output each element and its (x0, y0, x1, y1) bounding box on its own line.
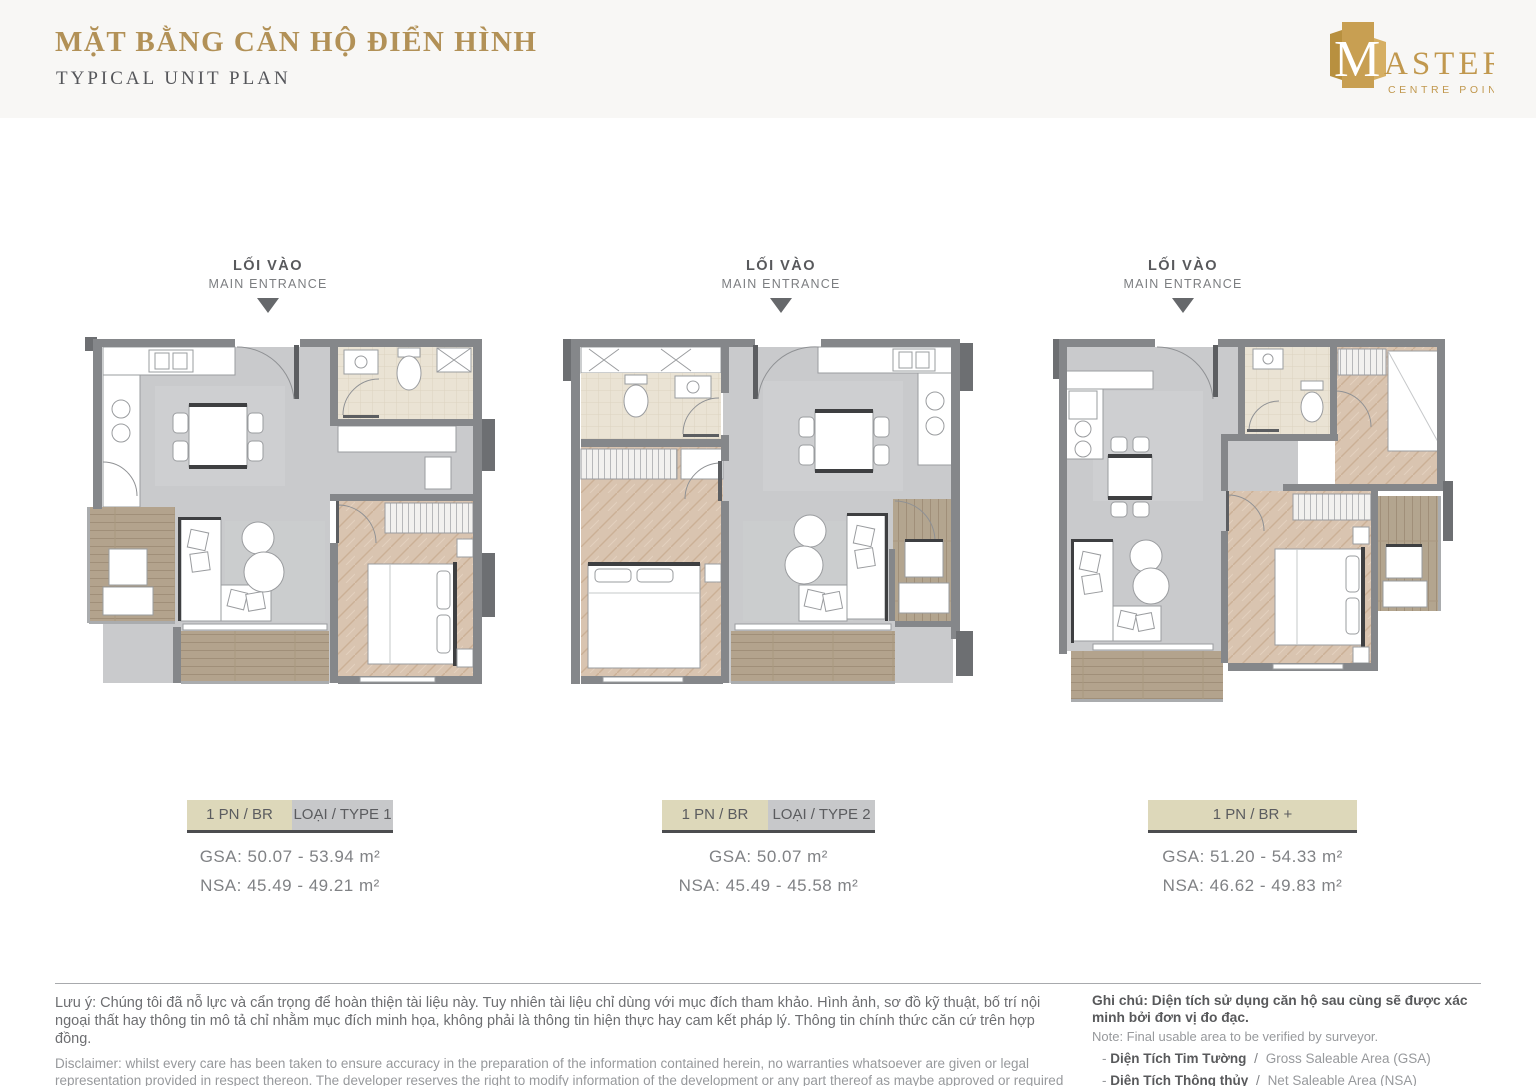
nsa-value: NSA: 45.49 - 49.21 m² (187, 876, 393, 896)
balcony-right (893, 499, 956, 621)
header-band: MẶT BẰNG CĂN HỘ ĐIỂN HÌNH TYPICAL UNIT P… (0, 0, 1536, 118)
unit-label-boxes: 1 PN / BR LOẠI / TYPE 1 (187, 800, 393, 830)
bathroom (338, 347, 473, 421)
unit-label-type-plus: 1 PN / BR + GSA: 51.20 - 54.33 m² NSA: 4… (1148, 800, 1357, 896)
balcony-bottom (1071, 644, 1223, 702)
bedroom-count-label: 1 PN / BR + (1148, 800, 1357, 830)
type-label: LOẠI / TYPE 1 (292, 800, 393, 830)
footer-note-right-en: Note: Final usable area to be verified b… (1092, 1029, 1492, 1044)
unit-label-type-1: 1 PN / BR LOẠI / TYPE 1 GSA: 50.07 - 53.… (187, 800, 393, 896)
legend-gsa-en: Gross Saleable Area (GSA) (1266, 1051, 1431, 1066)
entrance-vi: LỐI VÀO (1093, 258, 1273, 274)
bedroom (336, 501, 473, 676)
footer-divider (55, 983, 1481, 984)
legend-separator: / (1256, 1073, 1260, 1086)
label-underline (662, 830, 875, 833)
legend-bullet: - (1102, 1073, 1107, 1086)
entrance-vi: LỐI VÀO (691, 258, 871, 274)
footer-disclaimer-en: Disclaimer: whilst every care has been t… (55, 1055, 1065, 1086)
legend-gsa: - Diện Tích Tim Tường / Gross Saleable A… (1102, 1051, 1492, 1066)
brochure-page: MẶT BẰNG CĂN HỘ ĐIỂN HÌNH TYPICAL UNIT P… (0, 0, 1536, 1086)
balcony-bottom (181, 624, 329, 684)
logo-name: ASTERI (1384, 46, 1494, 82)
nsa-value: NSA: 45.49 - 45.58 m² (662, 876, 875, 896)
legend-nsa-vi: Diện Tích Thông thủy (1110, 1073, 1248, 1086)
entrance-arrow-icon (1172, 298, 1194, 313)
logo-tagline: CENTRE POINT (1388, 84, 1494, 96)
footer-notes: Ghi chú: Diện tích sử dụng căn hộ sau cù… (1092, 992, 1492, 1086)
floor-plan-type-plus (1053, 331, 1453, 716)
bathroom (581, 347, 721, 439)
legend-nsa: - Diện Tích Thông thủy / Net Saleable Ar… (1102, 1073, 1492, 1086)
unit-label-boxes: 1 PN / BR LOẠI / TYPE 2 (662, 800, 875, 830)
legend-gsa-vi: Diện Tích Tim Tường (1110, 1051, 1246, 1066)
label-underline (1148, 830, 1357, 833)
footer-note-vi: Lưu ý: Chúng tôi đã nỗ lực và cẩn trọng … (55, 994, 1065, 1048)
footer-disclaimer: Lưu ý: Chúng tôi đã nỗ lực và cẩn trọng … (55, 994, 1065, 1086)
entrance-label-plan2: LỐI VÀO MAIN ENTRANCE (691, 258, 871, 313)
entrance-en: MAIN ENTRANCE (178, 277, 358, 291)
entrance-arrow-icon (770, 298, 792, 313)
entrance-label-plan1: LỐI VÀO MAIN ENTRANCE (178, 258, 358, 313)
balcony-bottom (731, 624, 895, 684)
unit-label-type-2: 1 PN / BR LOẠI / TYPE 2 GSA: 50.07 m² NS… (662, 800, 875, 896)
label-underline (187, 830, 393, 833)
flex-room (1335, 347, 1443, 489)
bedroom-count-label: 1 PN / BR (187, 800, 292, 830)
gsa-value: GSA: 50.07 - 53.94 m² (187, 847, 393, 867)
gsa-value: GSA: 50.07 m² (662, 847, 875, 867)
legend-nsa-en: Net Saleable Area (NSA) (1268, 1073, 1417, 1086)
floor-plan-type-2 (563, 331, 983, 716)
bedroom-count-label: 1 PN / BR (662, 800, 768, 830)
floor-plan-type-1 (85, 331, 505, 716)
footer-note-right-vi: Ghi chú: Diện tích sử dụng căn hộ sau cù… (1092, 992, 1492, 1026)
logo-initial: M (1334, 31, 1380, 88)
balcony-right (1378, 496, 1441, 611)
page-title-vi: MẶT BẰNG CĂN HỘ ĐIỂN HÌNH (55, 26, 537, 59)
entrance-vi: LỐI VÀO (178, 258, 358, 274)
masteri-logo: M ASTERI CENTRE POINT (1322, 14, 1494, 106)
entrance-en: MAIN ENTRANCE (691, 277, 871, 291)
unit-label-boxes: 1 PN / BR + (1148, 800, 1357, 830)
legend-bullet: - (1102, 1051, 1107, 1066)
entrance-en: MAIN ENTRANCE (1093, 277, 1273, 291)
legend-separator: / (1254, 1051, 1258, 1066)
page-title-en: TYPICAL UNIT PLAN (56, 68, 291, 90)
nsa-value: NSA: 46.62 - 49.83 m² (1148, 876, 1357, 896)
bedroom (581, 447, 723, 676)
bathroom (1245, 347, 1330, 435)
entrance-arrow-icon (257, 298, 279, 313)
bedroom (1226, 491, 1373, 663)
entrance-label-plan3: LỐI VÀO MAIN ENTRANCE (1093, 258, 1273, 313)
gsa-value: GSA: 51.20 - 54.33 m² (1148, 847, 1357, 867)
type-label: LOẠI / TYPE 2 (768, 800, 875, 830)
